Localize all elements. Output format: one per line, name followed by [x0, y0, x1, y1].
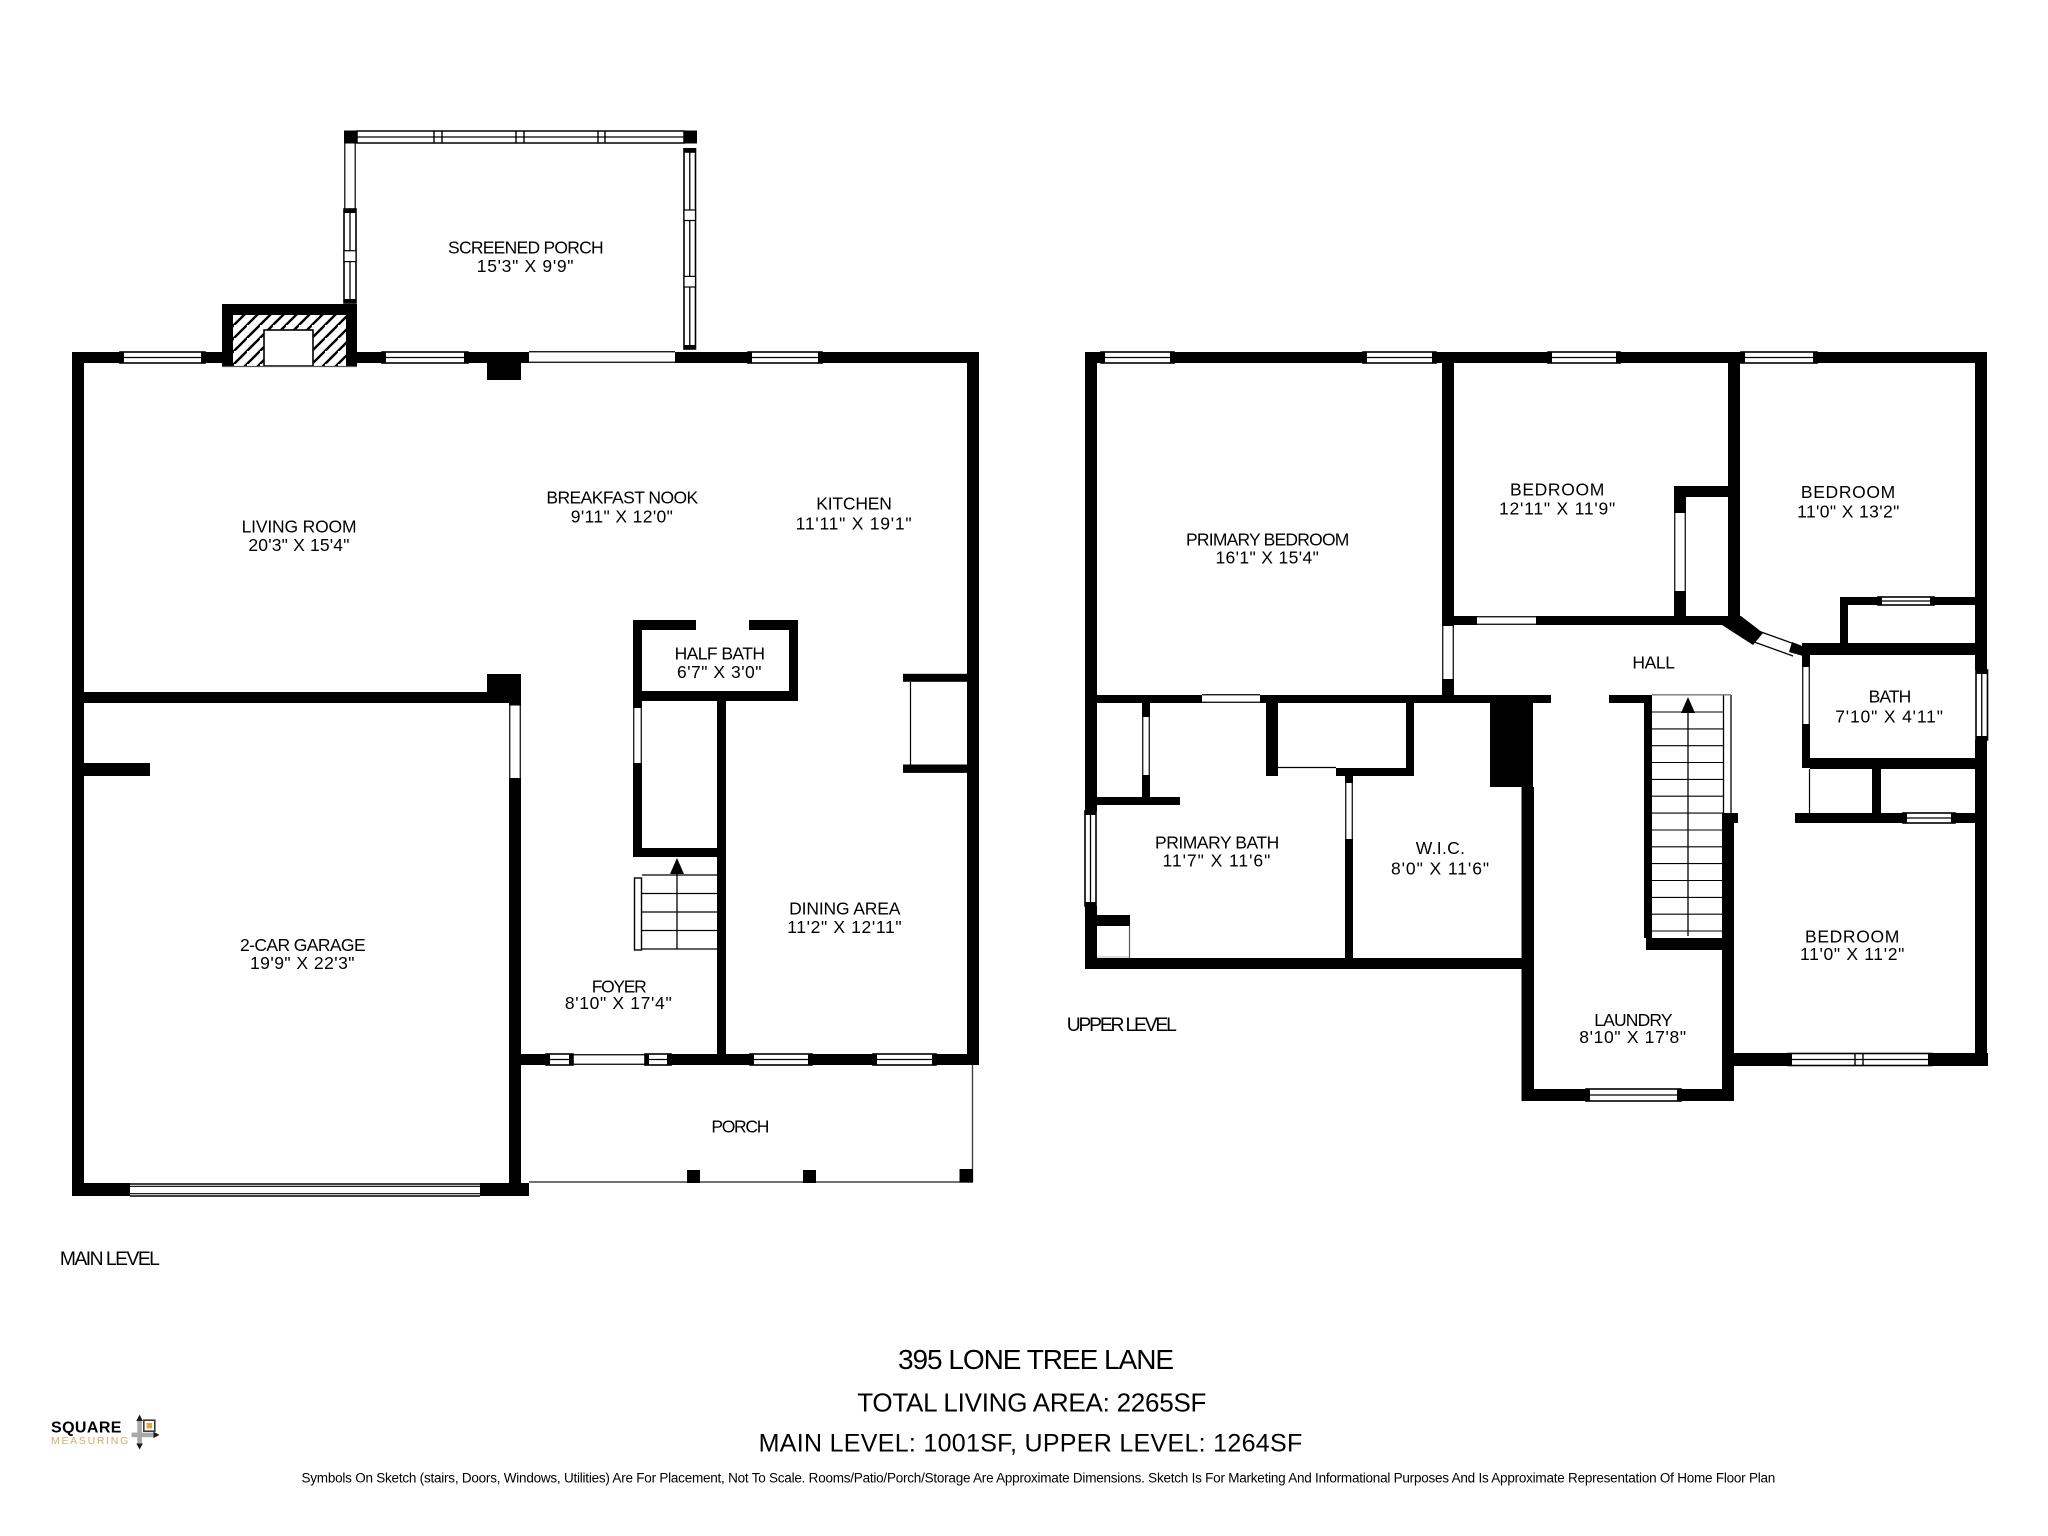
svg-text:9'11" X 12'0": 9'11" X 12'0": [571, 506, 674, 526]
svg-text:8'10" X 17'4": 8'10" X 17'4": [565, 993, 672, 1013]
svg-text:7'10" X 4'11": 7'10" X 4'11": [1835, 707, 1944, 727]
svg-text:DINING AREA: DINING AREA: [789, 899, 901, 919]
svg-text:TOTAL LIVING AREA: 2265SF: TOTAL LIVING AREA: 2265SF: [857, 1388, 1206, 1418]
svg-text:BATH: BATH: [1869, 687, 1911, 707]
svg-text:BEDROOM: BEDROOM: [1801, 482, 1896, 502]
svg-text:11'11" X 19'1": 11'11" X 19'1": [796, 513, 913, 533]
svg-text:15'3" X 9'9": 15'3" X 9'9": [477, 256, 574, 276]
svg-text:BREAKFAST NOOK: BREAKFAST NOOK: [546, 488, 698, 508]
svg-text:16'1" X 15'4": 16'1" X 15'4": [1215, 548, 1319, 568]
svg-text:HALF BATH: HALF BATH: [675, 644, 765, 664]
svg-text:395 LONE TREE LANE: 395 LONE TREE LANE: [898, 1344, 1173, 1375]
svg-text:12'11" X 11'9": 12'11" X 11'9": [1499, 498, 1616, 518]
svg-text:8'0" X 11'6": 8'0" X 11'6": [1391, 859, 1490, 879]
svg-text:11'0" X 13'2": 11'0" X 13'2": [1797, 501, 1900, 521]
svg-text:Symbols On Sketch (stairs, Doo: Symbols On Sketch (stairs, Doors, Window…: [302, 1471, 1776, 1486]
svg-text:SQUARE: SQUARE: [51, 1420, 122, 1437]
svg-text:11'0" X 11'2": 11'0" X 11'2": [1800, 944, 1905, 964]
svg-text:8'10" X 17'8": 8'10" X 17'8": [1579, 1027, 1686, 1047]
svg-text:11'7" X 11'6": 11'7" X 11'6": [1163, 851, 1272, 871]
svg-text:LIVING ROOM: LIVING ROOM: [242, 517, 357, 537]
svg-text:UPPER LEVEL: UPPER LEVEL: [1067, 1015, 1177, 1036]
svg-text:BEDROOM: BEDROOM: [1510, 479, 1605, 499]
svg-text:MAIN LEVEL: 1001SF, UPPER LEVE: MAIN LEVEL: 1001SF, UPPER LEVEL: 1264SF: [759, 1429, 1303, 1457]
svg-text:11'2" X 12'11": 11'2" X 12'11": [787, 917, 902, 937]
svg-text:W.I.C.: W.I.C.: [1416, 838, 1466, 858]
svg-text:KITCHEN: KITCHEN: [816, 494, 891, 514]
svg-text:19'9" X 22'3": 19'9" X 22'3": [250, 953, 355, 973]
svg-text:PRIMARY BATH: PRIMARY BATH: [1155, 833, 1279, 853]
svg-text:20'3" X 15'4": 20'3" X 15'4": [248, 535, 349, 555]
svg-text:SCREENED PORCH: SCREENED PORCH: [448, 238, 603, 258]
svg-text:6'7" X 3'0": 6'7" X 3'0": [677, 662, 762, 682]
svg-text:MAIN LEVEL: MAIN LEVEL: [60, 1249, 160, 1270]
svg-text:PRIMARY BEDROOM: PRIMARY BEDROOM: [1186, 530, 1349, 550]
svg-text:PORCH: PORCH: [711, 1117, 768, 1137]
svg-text:HALL: HALL: [1632, 653, 1675, 673]
svg-text:2-CAR GARAGE: 2-CAR GARAGE: [240, 935, 365, 955]
svg-text:MEASURING: MEASURING: [51, 1435, 130, 1447]
